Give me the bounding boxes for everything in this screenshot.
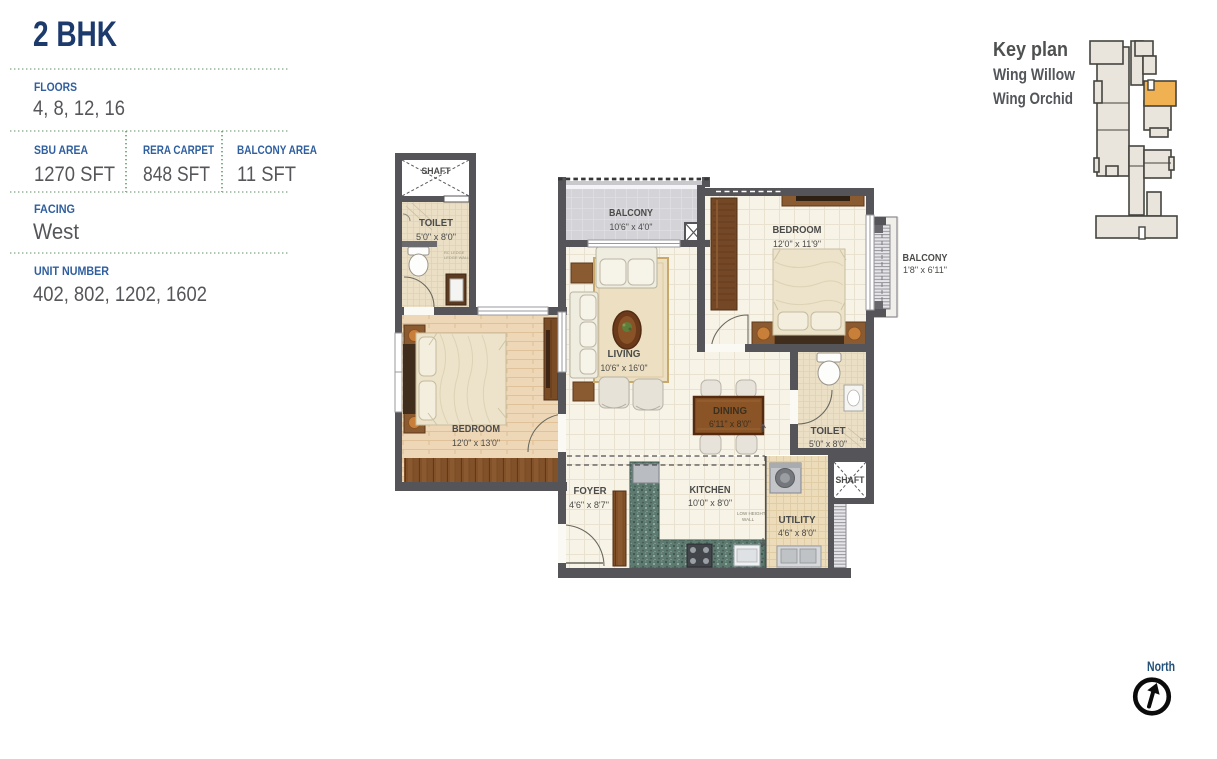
svg-text:BEDROOM: BEDROOM — [773, 224, 822, 236]
svg-text:LEDGE WALL: LEDGE WALL — [444, 255, 470, 260]
svg-text:5'0" x 8'0": 5'0" x 8'0" — [416, 232, 456, 242]
svg-text:LIVING: LIVING — [608, 348, 641, 360]
svg-text:RERA CARPET: RERA CARPET — [143, 145, 214, 157]
svg-text:5'0" x 8'0": 5'0" x 8'0" — [809, 439, 847, 449]
svg-text:Wing Willow: Wing Willow — [993, 66, 1075, 84]
svg-text:6'11" x 8'0": 6'11" x 8'0" — [709, 419, 751, 429]
svg-text:402, 802, 1202, 1602: 402, 802, 1202, 1602 — [33, 282, 207, 306]
svg-text:West: West — [33, 219, 79, 244]
svg-text:848 SFT: 848 SFT — [143, 162, 210, 186]
svg-text:11 SFT: 11 SFT — [237, 162, 296, 186]
svg-text:KITCHEN: KITCHEN — [690, 484, 731, 496]
svg-text:4'6" x 8'7": 4'6" x 8'7" — [569, 500, 609, 510]
svg-text:SHAFT: SHAFT — [836, 475, 865, 485]
svg-text:LOW HEIGHT: LOW HEIGHT — [737, 511, 766, 516]
svg-text:10'6" x 16'0": 10'6" x 16'0" — [601, 363, 648, 373]
svg-text:4'6" x 8'0": 4'6" x 8'0" — [778, 528, 816, 538]
svg-text:SHAFT: SHAFT — [422, 166, 451, 176]
svg-text:FOYER: FOYER — [574, 486, 608, 497]
svg-text:1'8" x 6'11": 1'8" x 6'11" — [903, 265, 947, 275]
svg-text:UNIT NUMBER: UNIT NUMBER — [34, 266, 110, 278]
svg-text:FLOORS: FLOORS — [34, 82, 77, 94]
svg-text:2 BHK: 2 BHK — [33, 15, 117, 54]
svg-text:DINING: DINING — [713, 406, 747, 417]
svg-text:10'6" x 4'0": 10'6" x 4'0" — [610, 222, 653, 232]
svg-text:FACING: FACING — [34, 204, 75, 216]
svg-text:TOILET: TOILET — [419, 217, 454, 229]
svg-text:4, 8, 12, 16: 4, 8, 12, 16 — [33, 96, 125, 120]
svg-text:BEDROOM: BEDROOM — [452, 423, 500, 435]
svg-text:TOILET: TOILET — [811, 425, 847, 437]
svg-text:BALCONY: BALCONY — [609, 208, 653, 219]
svg-text:10'0" x 8'0": 10'0" x 8'0" — [688, 498, 732, 508]
svg-text:1270 SFT: 1270 SFT — [34, 162, 115, 186]
svg-text:BALCONY AREA: BALCONY AREA — [237, 145, 317, 157]
svg-text:Key plan: Key plan — [993, 39, 1068, 61]
svg-text:UTILITY: UTILITY — [779, 515, 816, 526]
svg-text:BALCONY: BALCONY — [903, 253, 948, 264]
svg-text:North: North — [1147, 659, 1175, 674]
svg-text:Wing Orchid: Wing Orchid — [993, 90, 1073, 108]
svg-text:WALL: WALL — [742, 517, 755, 522]
svg-text:12'0" x 13'0": 12'0" x 13'0" — [452, 438, 500, 448]
svg-text:12'0" x 11'9": 12'0" x 11'9" — [773, 239, 821, 249]
svg-text:SBU AREA: SBU AREA — [34, 145, 88, 157]
